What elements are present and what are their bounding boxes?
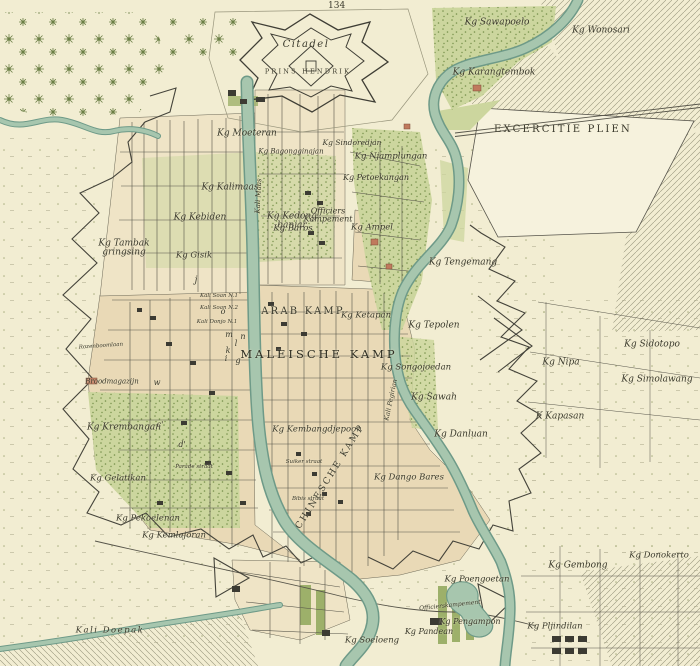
sheet-number: 134 bbox=[328, 1, 345, 11]
historical-map-soerabaja: CitadelPRINS HENDRIKKg SawapoeloKg Wonos… bbox=[0, 0, 700, 666]
map-canvas bbox=[0, 0, 700, 666]
